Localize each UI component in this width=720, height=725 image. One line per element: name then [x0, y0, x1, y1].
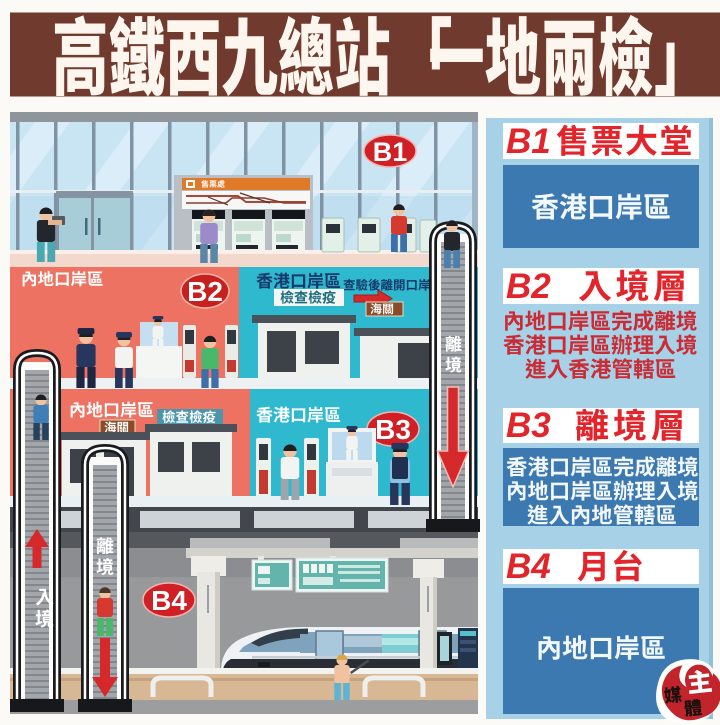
- svg-text:B1: B1: [373, 137, 408, 167]
- svg-text:B3: B3: [506, 406, 551, 445]
- svg-text:B2: B2: [506, 267, 551, 306]
- svg-text:B4: B4: [506, 547, 551, 586]
- svg-text:B4: B4: [151, 585, 187, 616]
- svg-text:B3: B3: [375, 414, 411, 445]
- svg-text:B1: B1: [506, 122, 551, 161]
- svg-text:B2: B2: [187, 276, 223, 307]
